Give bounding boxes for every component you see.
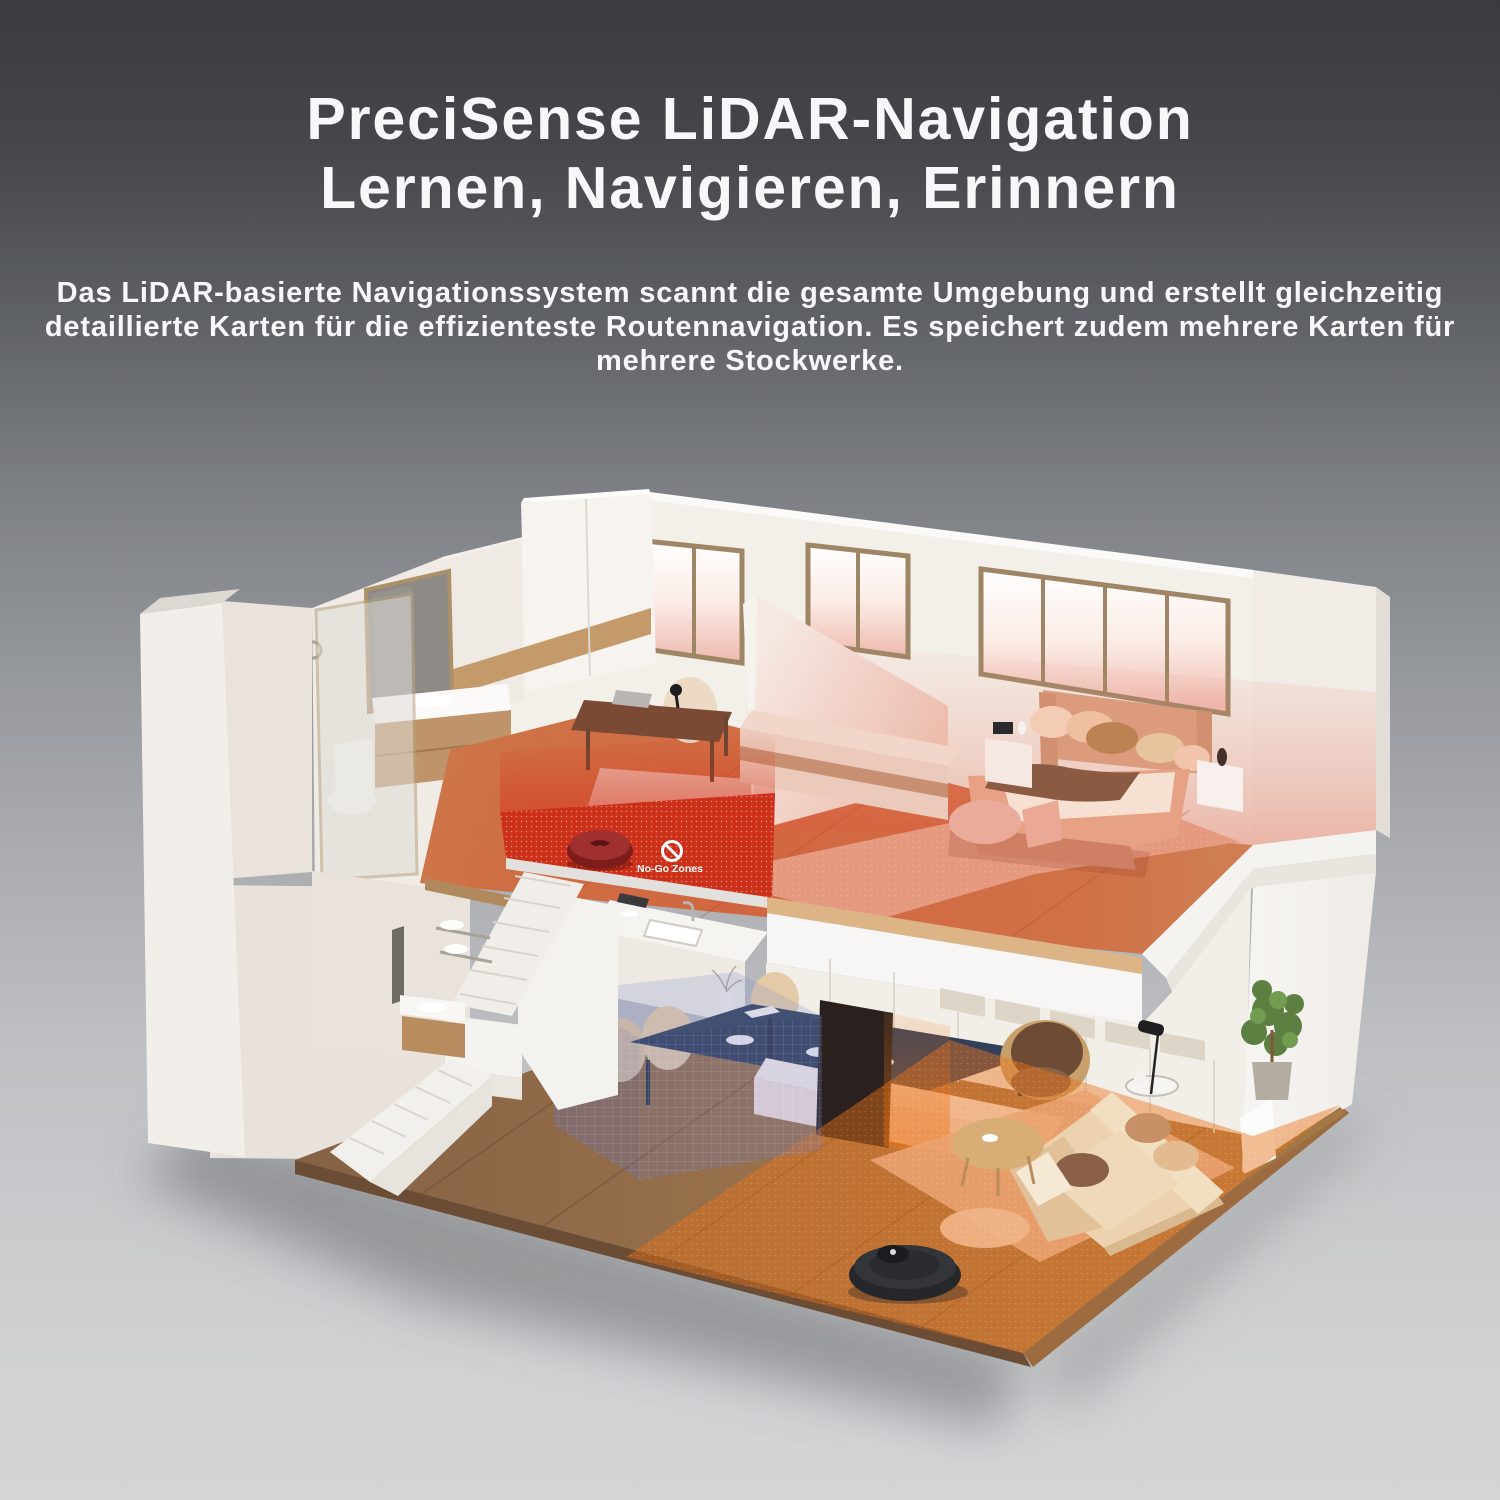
svg-text:No-Go Zones: No-Go Zones [637,863,703,875]
